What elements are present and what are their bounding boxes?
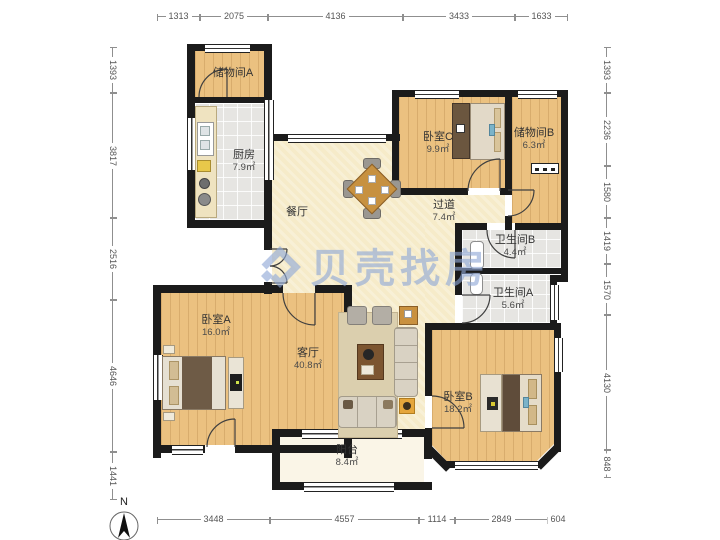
room-area: 7.9㎡ [233, 162, 256, 174]
dimension: 848 [606, 450, 607, 478]
dimension: 4646 [112, 300, 113, 452]
room-label-kitchen: 厨房 7.9㎡ [233, 148, 256, 175]
room-label-bedroom-c: 卧室C 9.9㎡ [423, 130, 453, 157]
room-label-storage-b: 储物间B 6.3㎡ [514, 126, 554, 153]
room-label-hallway: 过道 7.4㎡ [433, 198, 456, 225]
room-name: 卧室A [201, 313, 230, 327]
dimension: 1114 [419, 519, 455, 520]
dimension: 4130 [606, 315, 607, 450]
dimension: 2516 [112, 218, 113, 300]
room-label-storage-a: 储物间A [213, 66, 253, 80]
room-area: 6.3㎡ [514, 140, 554, 152]
dimension: 1570 [606, 264, 607, 315]
compass-label: N [120, 496, 128, 508]
dimension: 2849 [455, 519, 548, 520]
dimension: 1393 [606, 47, 607, 93]
room-area: 7.4㎡ [433, 212, 456, 224]
room-area: 16.0㎡ [201, 327, 230, 339]
room-name: 卧室B [443, 390, 472, 404]
room-name: 过道 [433, 198, 456, 212]
room-name: 餐厅 [286, 205, 308, 219]
room-name: 卫生间A [493, 286, 533, 300]
room-label-bedroom-b: 卧室B 18.2㎡ [443, 390, 472, 417]
dimension: 3433 [403, 16, 515, 17]
room-area: 4.4㎡ [495, 247, 535, 259]
room-label-dining: 餐厅 [286, 205, 308, 219]
room-area: 5.6㎡ [493, 300, 533, 312]
room-name: 客厅 [294, 346, 322, 360]
room-area: 9.9㎡ [423, 144, 453, 156]
dimension: 1393 [112, 47, 113, 93]
room-name: 厨房 [233, 148, 256, 162]
room-label-balcony: 阳台 8.4㎡ [336, 443, 359, 470]
dimension: 3817 [112, 93, 113, 218]
room-name: 卫生间B [495, 233, 535, 247]
room-label-bedroom-a: 卧室A 16.0㎡ [201, 313, 230, 340]
room-area: 40.8㎡ [294, 360, 322, 372]
room-label-living: 客厅 40.8㎡ [294, 346, 322, 373]
dimension: 2236 [606, 93, 607, 166]
compass-circle [107, 510, 141, 540]
room-label-bathroom-a: 卫生间A 5.6㎡ [493, 286, 533, 313]
room-name: 储物间B [514, 126, 554, 140]
dimension: 1419 [606, 218, 607, 264]
room-name: 阳台 [336, 443, 359, 457]
room-area: 8.4㎡ [336, 457, 359, 469]
room-area: 18.2㎡ [443, 404, 472, 416]
dimension: 1633 [515, 16, 568, 17]
dimension: 1441 [112, 452, 113, 500]
dimension: 4557 [270, 519, 419, 520]
dimension: 4136 [268, 16, 403, 17]
room-name: 卧室C [423, 130, 453, 144]
room-name: 储物间A [213, 66, 253, 80]
dimension: 2075 [200, 16, 268, 17]
dimension: 604 [548, 519, 568, 520]
dimension: 3448 [157, 519, 270, 520]
dimension: 1313 [157, 16, 200, 17]
floor-plan: 储物间A 厨房 7.9㎡ 餐厅 卧室C 9.9㎡ 储物间B 6.3㎡ 过道 7.… [0, 0, 720, 540]
dimension: 1580 [606, 166, 607, 218]
room-label-bathroom-b: 卫生间B 4.4㎡ [495, 233, 535, 260]
